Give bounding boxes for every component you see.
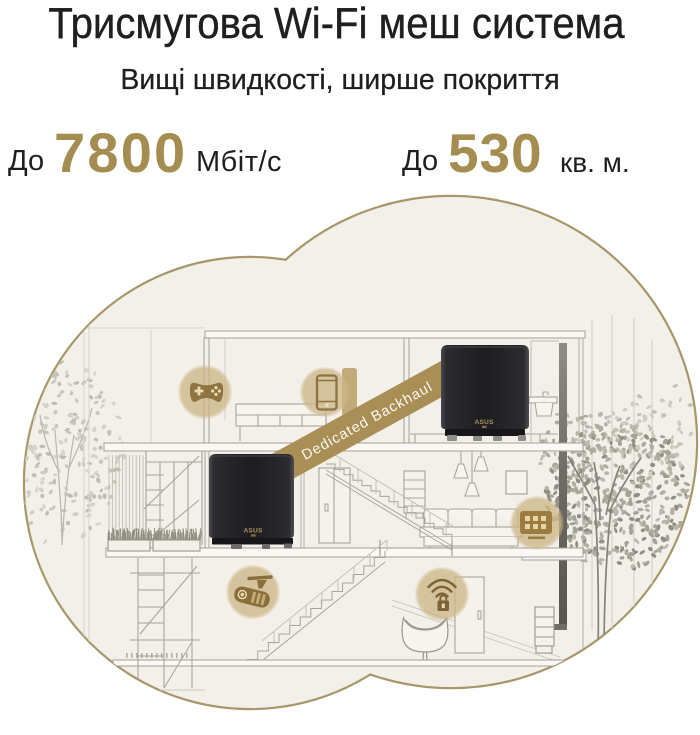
- svg-text:ASUS: ASUS: [243, 528, 262, 535]
- svg-text:ASUS: ASUS: [474, 419, 493, 426]
